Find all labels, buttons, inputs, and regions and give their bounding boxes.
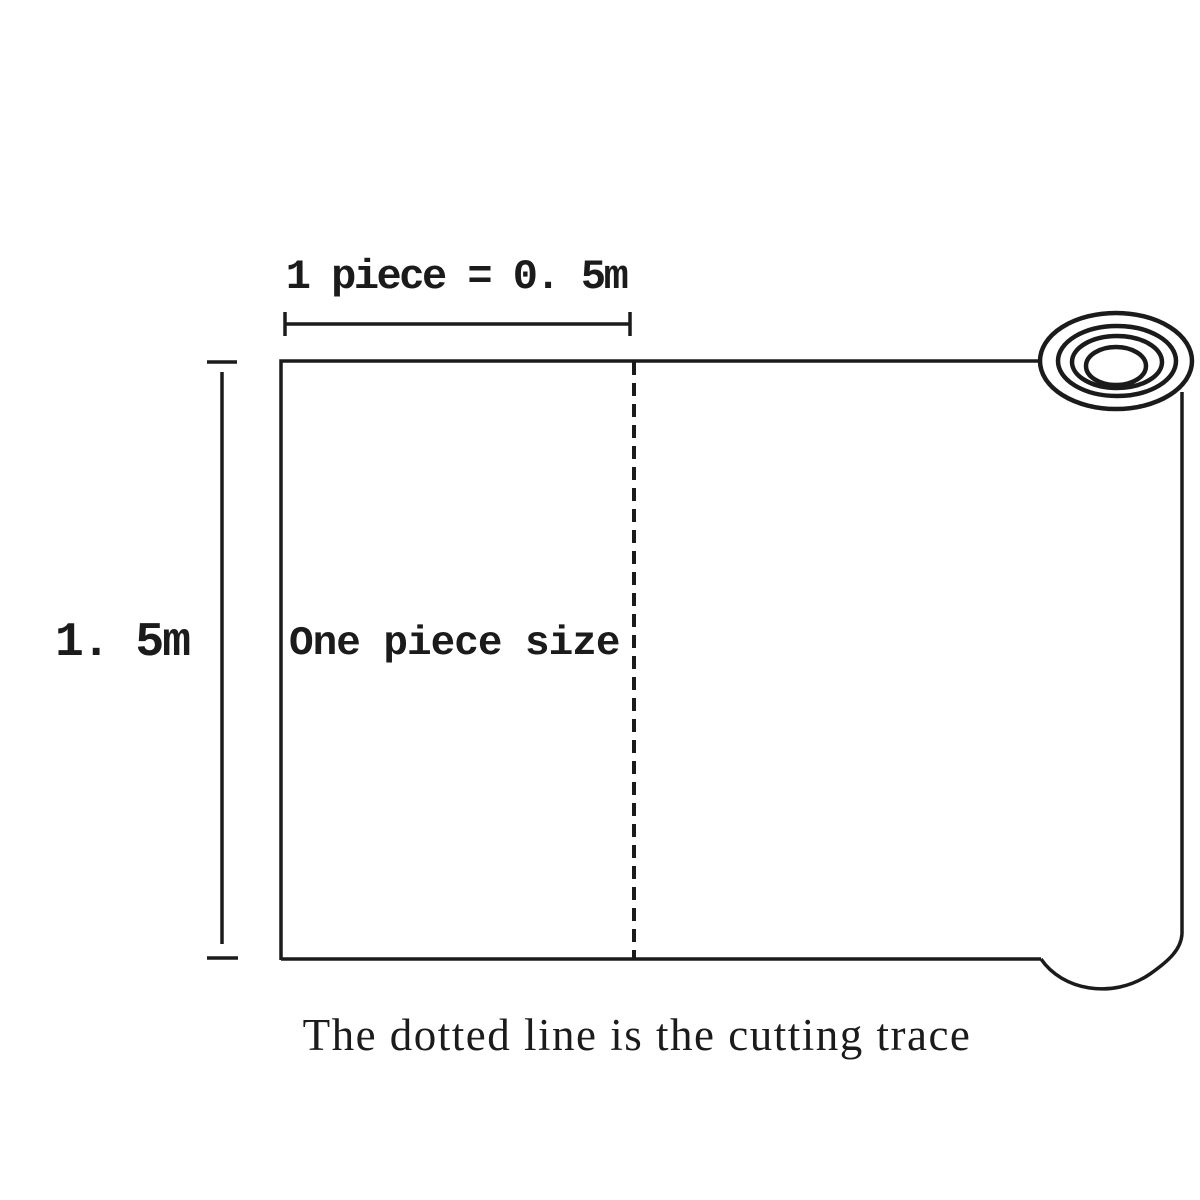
caption-text: The dotted line is the cutting trace xyxy=(303,1010,972,1060)
diagram-svg: 1 piece = 0. 5m 1. 5m One piece size The… xyxy=(0,0,1200,1200)
left-dimension-label: 1. 5m xyxy=(55,616,190,670)
roll-ring-inner xyxy=(1086,347,1146,385)
roll-cutting-diagram: 1 piece = 0. 5m 1. 5m One piece size The… xyxy=(0,0,1200,1200)
top-dimension-label: 1 piece = 0. 5m xyxy=(286,253,628,301)
piece-size-label: One piece size xyxy=(289,621,619,667)
roll-icon xyxy=(1040,313,1192,409)
